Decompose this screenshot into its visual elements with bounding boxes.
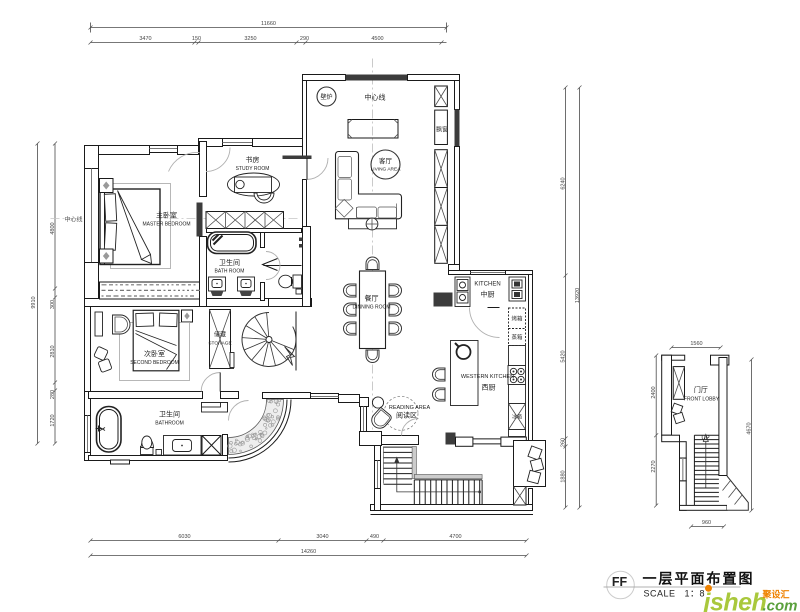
svg-text:490: 490 <box>370 534 379 540</box>
svg-text:客厅: 客厅 <box>379 156 393 165</box>
svg-text:2400: 2400 <box>651 386 657 398</box>
svg-text:卫生间: 卫生间 <box>159 410 180 419</box>
svg-text:一层平面布置图: 一层平面布置图 <box>643 571 755 587</box>
svg-text:1880: 1880 <box>561 470 567 482</box>
svg-text:3250: 3250 <box>244 36 256 42</box>
svg-text:KITCHEN: KITCHEN <box>474 282 500 288</box>
svg-text:FRONT LOBBY: FRONT LOBBY <box>684 397 720 403</box>
svg-text:1720: 1720 <box>50 414 56 426</box>
svg-text:主卧室: 主卧室 <box>156 211 177 220</box>
svg-text:290: 290 <box>300 36 309 42</box>
svg-text:4700: 4700 <box>449 534 461 540</box>
svg-text:飘窗: 飘窗 <box>436 126 448 134</box>
svg-text:300: 300 <box>50 300 56 309</box>
svg-text:卫生间: 卫生间 <box>219 258 240 267</box>
svg-text:次卧室: 次卧室 <box>144 349 165 358</box>
svg-text:中心线: 中心线 <box>365 93 386 102</box>
svg-text:门厅: 门厅 <box>694 385 708 394</box>
svg-text:11660: 11660 <box>261 21 276 27</box>
svg-text:WESTERN KITCHEN: WESTERN KITCHEN <box>461 374 514 380</box>
svg-text:4670: 4670 <box>747 422 753 434</box>
svg-text:STORAGE: STORAGE <box>208 341 231 347</box>
svg-text:SECOND BEDROOM: SECOND BEDROOM <box>130 360 179 366</box>
svg-text:2270: 2270 <box>651 460 657 472</box>
svg-text:14260: 14260 <box>301 549 316 555</box>
svg-text:MASTER BEDROOM: MASTER BEDROOM <box>142 222 190 228</box>
svg-text:阅读区: 阅读区 <box>396 411 417 420</box>
svg-text:2810: 2810 <box>50 345 56 357</box>
svg-text:1560: 1560 <box>690 341 702 347</box>
svg-text:3040: 3040 <box>316 534 328 540</box>
svg-text:蒸箱: 蒸箱 <box>511 333 523 341</box>
svg-text:书房: 书房 <box>246 155 260 164</box>
svg-text:13920: 13920 <box>575 288 581 303</box>
svg-text:冰箱: 冰箱 <box>512 414 522 421</box>
svg-text:中心线: 中心线 <box>65 216 83 224</box>
svg-text:280: 280 <box>50 390 56 399</box>
svg-text:jsheh: jsheh <box>701 589 767 612</box>
svg-text:5420: 5420 <box>561 350 567 362</box>
svg-text:260: 260 <box>561 438 567 447</box>
svg-text:.com: .com <box>763 598 798 612</box>
svg-text:壁炉: 壁炉 <box>320 93 332 101</box>
svg-text:SCALE 1：8: SCALE 1：8 <box>644 589 706 599</box>
svg-text:4800: 4800 <box>50 222 56 234</box>
svg-text:6240: 6240 <box>561 177 567 189</box>
svg-text:烤箱: 烤箱 <box>511 315 523 323</box>
svg-text:3470: 3470 <box>139 36 151 42</box>
svg-text:储藏: 储藏 <box>214 331 226 339</box>
svg-text:6030: 6030 <box>178 534 190 540</box>
svg-text:4500: 4500 <box>371 36 383 42</box>
svg-text:西厨: 西厨 <box>482 384 496 392</box>
svg-text:150: 150 <box>192 36 201 42</box>
svg-text:READING AREA: READING AREA <box>389 405 431 411</box>
svg-text:DINNING ROOM: DINNING ROOM <box>352 305 390 311</box>
svg-text:960: 960 <box>702 520 711 526</box>
svg-text:BATH ROOM: BATH ROOM <box>215 269 245 275</box>
svg-text:中厨: 中厨 <box>481 290 495 299</box>
svg-text:LIVING AREA: LIVING AREA <box>371 167 402 173</box>
svg-text:STUDY ROOM: STUDY ROOM <box>236 166 270 172</box>
svg-text:餐厅: 餐厅 <box>365 294 379 303</box>
svg-text:聚设汇: 聚设汇 <box>762 589 790 600</box>
svg-text:BATHROOM: BATHROOM <box>155 421 184 427</box>
svg-text:9910: 9910 <box>31 296 37 308</box>
